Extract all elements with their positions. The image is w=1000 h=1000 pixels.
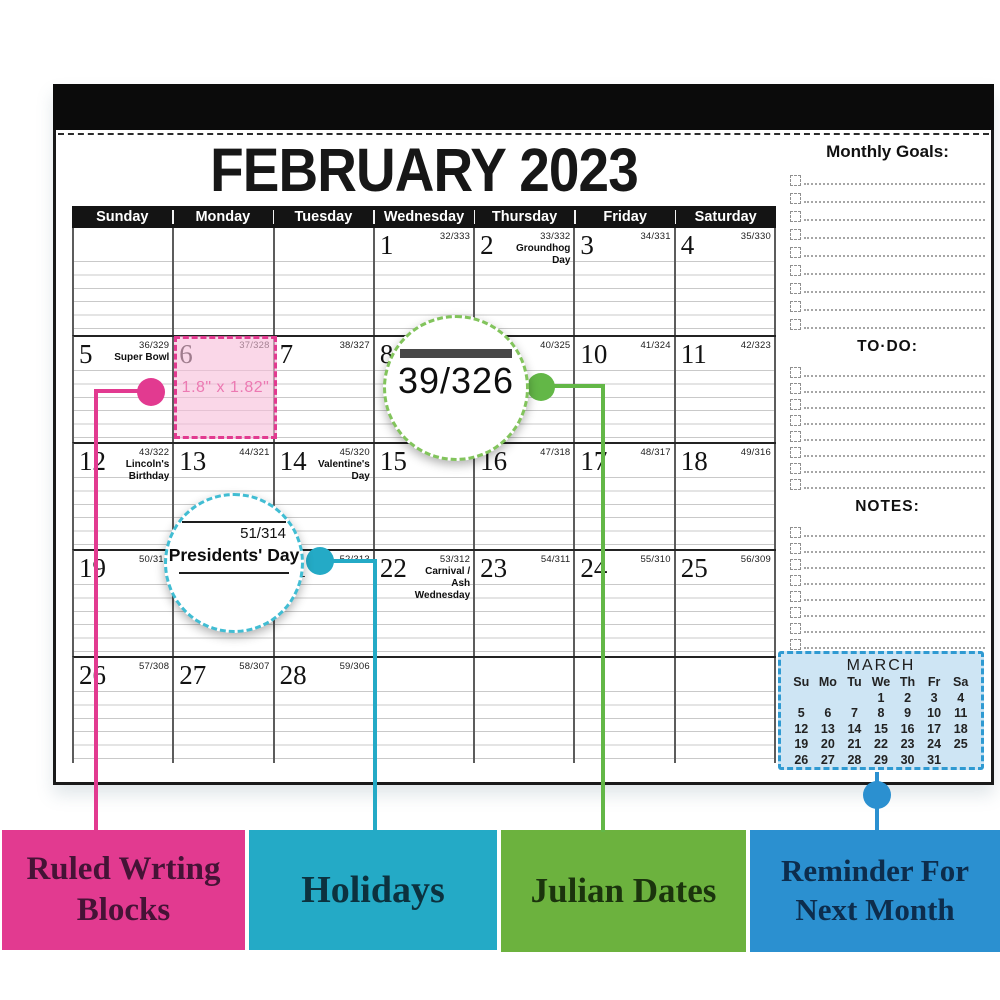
day-cell	[74, 228, 174, 335]
dotted-writing-line	[804, 391, 985, 393]
sidebar-line	[790, 442, 985, 458]
march-date: 6	[815, 706, 842, 722]
march-date: 1	[868, 691, 895, 707]
day-cell: 2253/312Carnival / Ash Wednesday	[375, 551, 475, 656]
callout-dot-holidays-icon	[306, 547, 334, 575]
weekday-header-row: SundayMondayTuesdayWednesdayThursdayFrid…	[72, 206, 776, 228]
march-date	[947, 753, 974, 769]
sidebar-line	[790, 634, 985, 650]
dotted-writing-line	[804, 219, 985, 221]
day-cell: 1647/318	[475, 444, 575, 549]
julian-date: 44/321	[239, 447, 269, 458]
dotted-writing-line	[804, 201, 985, 203]
julian-date: 33/332	[540, 231, 570, 242]
march-day-header: We	[868, 675, 895, 691]
weekday-sunday: Sunday	[72, 206, 173, 228]
day-number: 15	[375, 444, 407, 475]
sidebar: Monthly Goals:TO·DO:NOTES:	[790, 142, 985, 650]
day-cell: 1142/323	[676, 337, 776, 442]
julian-date: 55/310	[640, 554, 670, 565]
day-cell: 2455/310	[575, 551, 675, 656]
march-date: 22	[868, 737, 895, 753]
sidebar-line	[790, 538, 985, 554]
dotted-writing-line	[804, 599, 985, 601]
sidebar-line	[790, 426, 985, 442]
march-date: 26	[788, 753, 815, 769]
march-date: 2	[894, 691, 921, 707]
weekday-monday: Monday	[173, 206, 274, 228]
callout-dot-julian-icon	[527, 373, 555, 401]
sidebar-line	[790, 458, 985, 474]
holiday-label: Lincoln's Birthday	[105, 459, 169, 483]
day-number: 14	[275, 444, 307, 475]
day-number: 25	[676, 551, 708, 582]
callout-dot-ruled-icon	[137, 378, 165, 406]
checkbox-icon	[790, 211, 801, 222]
day-cell: 2354/311	[475, 551, 575, 656]
dotted-writing-line	[804, 439, 985, 441]
dotted-writing-line	[804, 583, 985, 585]
holiday-label: Valentine's Day	[306, 459, 370, 483]
checkbox-icon	[790, 559, 801, 570]
day-cell	[275, 228, 375, 335]
callout-julian-dates: Julian Dates	[501, 830, 746, 952]
march-mini-calendar: MARCH SuMoTuWeThFrSa12345678910111213141…	[778, 651, 984, 770]
sidebar-line	[790, 410, 985, 426]
dotted-writing-line	[804, 407, 985, 409]
day-cell: 2556/309	[676, 551, 776, 656]
julian-date: 43/322	[139, 447, 169, 458]
dotted-writing-line	[804, 183, 985, 185]
checkbox-icon	[790, 229, 801, 240]
checkbox-icon	[790, 431, 801, 442]
sidebar-line	[790, 618, 985, 634]
march-date: 29	[868, 753, 895, 769]
sidebar-line	[790, 586, 985, 602]
magnified-holiday-name: Presidents' Day	[169, 545, 300, 566]
callout-ruled-writing-blocks: Ruled Wrting Blocks	[2, 830, 245, 950]
day-number: 18	[676, 444, 708, 475]
march-date: 20	[815, 737, 842, 753]
julian-date: 34/331	[640, 231, 670, 242]
grommet-right-icon	[766, 93, 792, 119]
checkbox-icon	[790, 479, 801, 490]
sidebar-line	[790, 602, 985, 618]
day-number: 4	[676, 228, 695, 259]
checkbox-icon	[790, 319, 801, 330]
julian-date: 48/317	[640, 447, 670, 458]
holiday-label: Super Bowl	[114, 352, 169, 364]
march-date	[788, 691, 815, 707]
march-title: MARCH	[788, 657, 974, 675]
holiday-label: Carnival / Ash Wednesday	[406, 566, 470, 602]
day-cell: 2859/306	[275, 658, 375, 763]
dotted-writing-line	[804, 647, 985, 649]
dotted-writing-line	[804, 487, 985, 489]
day-number: 11	[676, 337, 707, 368]
march-date: 15	[868, 722, 895, 738]
sidebar-line	[790, 168, 985, 186]
march-date: 30	[894, 753, 921, 769]
day-number: 23	[475, 551, 507, 582]
day-number: 22	[375, 551, 407, 582]
julian-date: 42/323	[741, 340, 771, 351]
callout-label: Julian Dates	[531, 871, 717, 911]
julian-date: 40/325	[540, 340, 570, 351]
julian-date: 54/311	[541, 554, 571, 565]
grommet-left-icon	[221, 93, 247, 119]
march-date: 9	[894, 706, 921, 722]
march-day-header: Fr	[921, 675, 948, 691]
march-grid: SuMoTuWeThFrSa12345678910111213141516171…	[788, 675, 974, 768]
weekday-friday: Friday	[575, 206, 676, 228]
march-date: 19	[788, 737, 815, 753]
dotted-writing-line	[804, 471, 985, 473]
march-day-header: Th	[894, 675, 921, 691]
checkbox-icon	[790, 283, 801, 294]
julian-date: 36/329	[139, 340, 169, 351]
callout-dot-reminder-icon	[863, 781, 891, 809]
dotted-writing-line	[804, 631, 985, 633]
day-cell: 435/330	[676, 228, 776, 335]
dotted-writing-line	[804, 567, 985, 569]
julian-date: 32/333	[440, 231, 470, 242]
sidebar-heading-monthlygoals: Monthly Goals:	[790, 142, 985, 162]
checkbox-icon	[790, 265, 801, 276]
julian-date: 47/318	[540, 447, 570, 458]
sidebar-line	[790, 554, 985, 570]
checkbox-icon	[790, 193, 801, 204]
checkbox-icon	[790, 367, 801, 378]
dotted-writing-line	[804, 615, 985, 617]
julian-date: 41/324	[640, 340, 670, 351]
march-date: 13	[815, 722, 842, 738]
julian-date: 57/308	[139, 661, 169, 672]
march-day-header: Tu	[841, 675, 868, 691]
day-number: 28	[275, 658, 307, 689]
sidebar-line	[790, 294, 985, 312]
day-cell: 1950/315	[74, 551, 174, 656]
magnifier-holiday: 51/314 Presidents' Day	[164, 493, 304, 633]
march-date: 23	[894, 737, 921, 753]
day-number: 13	[174, 444, 206, 475]
julian-date: 59/306	[340, 661, 370, 672]
callout-line-julian-vertical	[601, 384, 605, 832]
magnified-rule-line-top	[182, 521, 286, 523]
julian-date: 38/327	[340, 340, 370, 351]
day-cell: 1748/317	[575, 444, 675, 549]
day-cell: 738/327	[275, 337, 375, 442]
march-date: 25	[947, 737, 974, 753]
checkbox-icon	[790, 575, 801, 586]
day-cell	[676, 658, 776, 763]
sidebar-line	[790, 362, 985, 378]
march-date: 17	[921, 722, 948, 738]
callout-label: Reminder For Next Month	[750, 852, 1000, 930]
checkbox-icon	[790, 623, 801, 634]
march-date: 31	[921, 753, 948, 769]
day-number: 2	[475, 228, 494, 259]
callout-reminder-next-month: Reminder For Next Month	[750, 830, 1000, 952]
checkbox-icon	[790, 591, 801, 602]
magnifier-julian-date: 39/326	[383, 315, 529, 461]
march-date: 24	[921, 737, 948, 753]
julian-date: 56/309	[741, 554, 771, 565]
day-cell	[575, 658, 675, 763]
sidebar-line	[790, 186, 985, 204]
day-number: 27	[174, 658, 206, 689]
day-number: 7	[275, 337, 294, 368]
weekday-wednesday: Wednesday	[374, 206, 475, 228]
checkbox-icon	[790, 447, 801, 458]
march-date	[815, 691, 842, 707]
day-cell	[475, 658, 575, 763]
march-date: 11	[947, 706, 974, 722]
weekday-saturday: Saturday	[675, 206, 776, 228]
march-date: 18	[947, 722, 974, 738]
march-date: 4	[947, 691, 974, 707]
magnified-grid-line	[400, 349, 512, 358]
sidebar-line	[790, 204, 985, 222]
sidebar-line	[790, 474, 985, 490]
checkbox-icon	[790, 175, 801, 186]
day-cell	[375, 658, 475, 763]
holiday-label: Groundhog Day	[506, 243, 570, 267]
callout-line-holidays-vertical	[373, 559, 377, 832]
checkbox-icon	[790, 247, 801, 258]
sidebar-line	[790, 222, 985, 240]
magnified-julian-value: 39/326	[398, 360, 514, 402]
dotted-writing-line	[804, 273, 985, 275]
dotted-writing-line	[804, 455, 985, 457]
march-date: 16	[894, 722, 921, 738]
magnified-rule-line-bottom	[179, 572, 289, 574]
day-number: 12	[74, 444, 106, 475]
march-day-header: Su	[788, 675, 815, 691]
sidebar-line	[790, 570, 985, 586]
day-number: 3	[575, 228, 594, 259]
march-day-header: Mo	[815, 675, 842, 691]
day-number: 5	[74, 337, 93, 368]
month-title: FEBRUARY 2023	[107, 135, 741, 205]
march-date: 14	[841, 722, 868, 738]
highlight-block-size-label: 1.8" x 1.82"	[182, 379, 270, 397]
sidebar-line	[790, 240, 985, 258]
sidebar-line	[790, 312, 985, 330]
checkbox-icon	[790, 463, 801, 474]
dotted-writing-line	[804, 551, 985, 553]
callout-holidays: Holidays	[249, 830, 497, 950]
march-date: 8	[868, 706, 895, 722]
julian-date: 53/312	[440, 554, 470, 565]
highlight-block-ruled-writing: 1.8" x 1.82"	[174, 336, 277, 439]
march-date: 7	[841, 706, 868, 722]
weekday-tuesday: Tuesday	[273, 206, 374, 228]
sidebar-line	[790, 276, 985, 294]
day-cell	[174, 228, 274, 335]
day-cell: 2657/308	[74, 658, 174, 763]
checkbox-icon	[790, 527, 801, 538]
march-date: 5	[788, 706, 815, 722]
callout-label: Holidays	[301, 868, 445, 912]
day-cell: 233/332Groundhog Day	[475, 228, 575, 335]
dotted-writing-line	[804, 327, 985, 329]
sidebar-heading-notes: NOTES:	[790, 498, 985, 516]
sidebar-line	[790, 378, 985, 394]
checkbox-icon	[790, 639, 801, 650]
week-row: 2657/3082758/3072859/306	[72, 656, 776, 763]
march-date: 10	[921, 706, 948, 722]
top-binding-bar	[53, 84, 994, 130]
sidebar-line	[790, 394, 985, 410]
sidebar-heading-todo: TO·DO:	[790, 338, 985, 356]
march-date: 12	[788, 722, 815, 738]
dotted-writing-line	[804, 375, 985, 377]
calendar-grid: SundayMondayTuesdayWednesdayThursdayFrid…	[72, 206, 776, 763]
checkbox-icon	[790, 543, 801, 554]
day-cell: 334/331	[575, 228, 675, 335]
julian-date: 49/316	[741, 447, 771, 458]
march-date: 3	[921, 691, 948, 707]
checkbox-icon	[790, 399, 801, 410]
march-day-header: Sa	[947, 675, 974, 691]
day-number: 10	[575, 337, 607, 368]
dotted-writing-line	[804, 255, 985, 257]
weekday-thursday: Thursday	[474, 206, 575, 228]
day-number: 19	[74, 551, 106, 582]
sidebar-line	[790, 258, 985, 276]
dotted-writing-line	[804, 291, 985, 293]
callout-label: Ruled Wrting Blocks	[2, 849, 245, 932]
day-cell: 2758/307	[174, 658, 274, 763]
callout-line-ruled-vertical	[94, 389, 98, 832]
dotted-writing-line	[804, 309, 985, 311]
day-number: 1	[375, 228, 394, 259]
day-cell: 1849/316	[676, 444, 776, 549]
day-cell: 1041/324	[575, 337, 675, 442]
checkbox-icon	[790, 415, 801, 426]
calendar-weeks: 132/333233/332Groundhog Day334/331435/33…	[72, 228, 776, 763]
julian-date: 45/320	[340, 447, 370, 458]
march-date: 27	[815, 753, 842, 769]
checkbox-icon	[790, 301, 801, 312]
day-number: 26	[74, 658, 106, 689]
week-row: 132/333233/332Groundhog Day334/331435/33…	[72, 228, 776, 335]
dotted-writing-line	[804, 535, 985, 537]
march-date: 21	[841, 737, 868, 753]
checkbox-icon	[790, 607, 801, 618]
julian-date: 35/330	[741, 231, 771, 242]
dotted-writing-line	[804, 423, 985, 425]
march-date: 28	[841, 753, 868, 769]
sidebar-line	[790, 522, 985, 538]
day-cell: 1243/322Lincoln's Birthday	[74, 444, 174, 549]
checkbox-icon	[790, 383, 801, 394]
julian-date: 58/307	[239, 661, 269, 672]
march-date	[841, 691, 868, 707]
magnified-holiday-julian: 51/314	[182, 525, 286, 542]
dotted-writing-line	[804, 237, 985, 239]
